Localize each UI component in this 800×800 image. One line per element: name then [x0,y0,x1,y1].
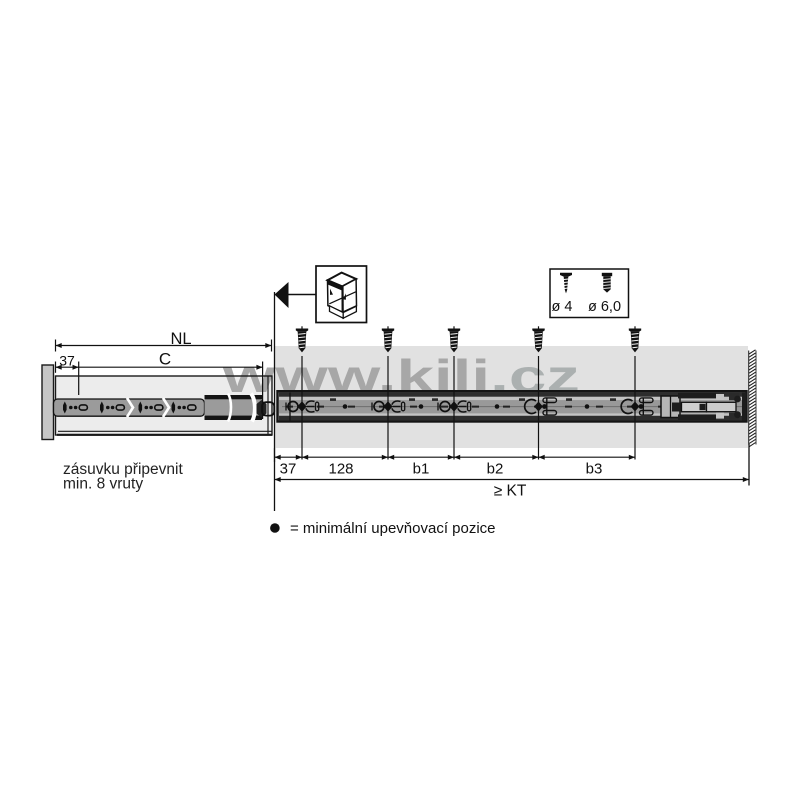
svg-text:C: C [159,350,171,369]
svg-text:128: 128 [328,461,353,478]
svg-text:min. 8 vruty: min. 8 vruty [63,475,143,492]
svg-text:ø 4: ø 4 [552,299,573,315]
svg-text:≥ KT: ≥ KT [494,483,527,500]
svg-text:b3: b3 [586,461,603,478]
svg-text:= minimální upevňovací pozice: = minimální upevňovací pozice [290,520,496,537]
svg-text:b2: b2 [487,461,504,478]
svg-text:37: 37 [59,353,75,369]
svg-text:37: 37 [280,461,297,478]
svg-text:b1: b1 [413,461,430,478]
svg-text:NL: NL [170,330,191,348]
svg-text:ø 6,0: ø 6,0 [588,299,621,315]
